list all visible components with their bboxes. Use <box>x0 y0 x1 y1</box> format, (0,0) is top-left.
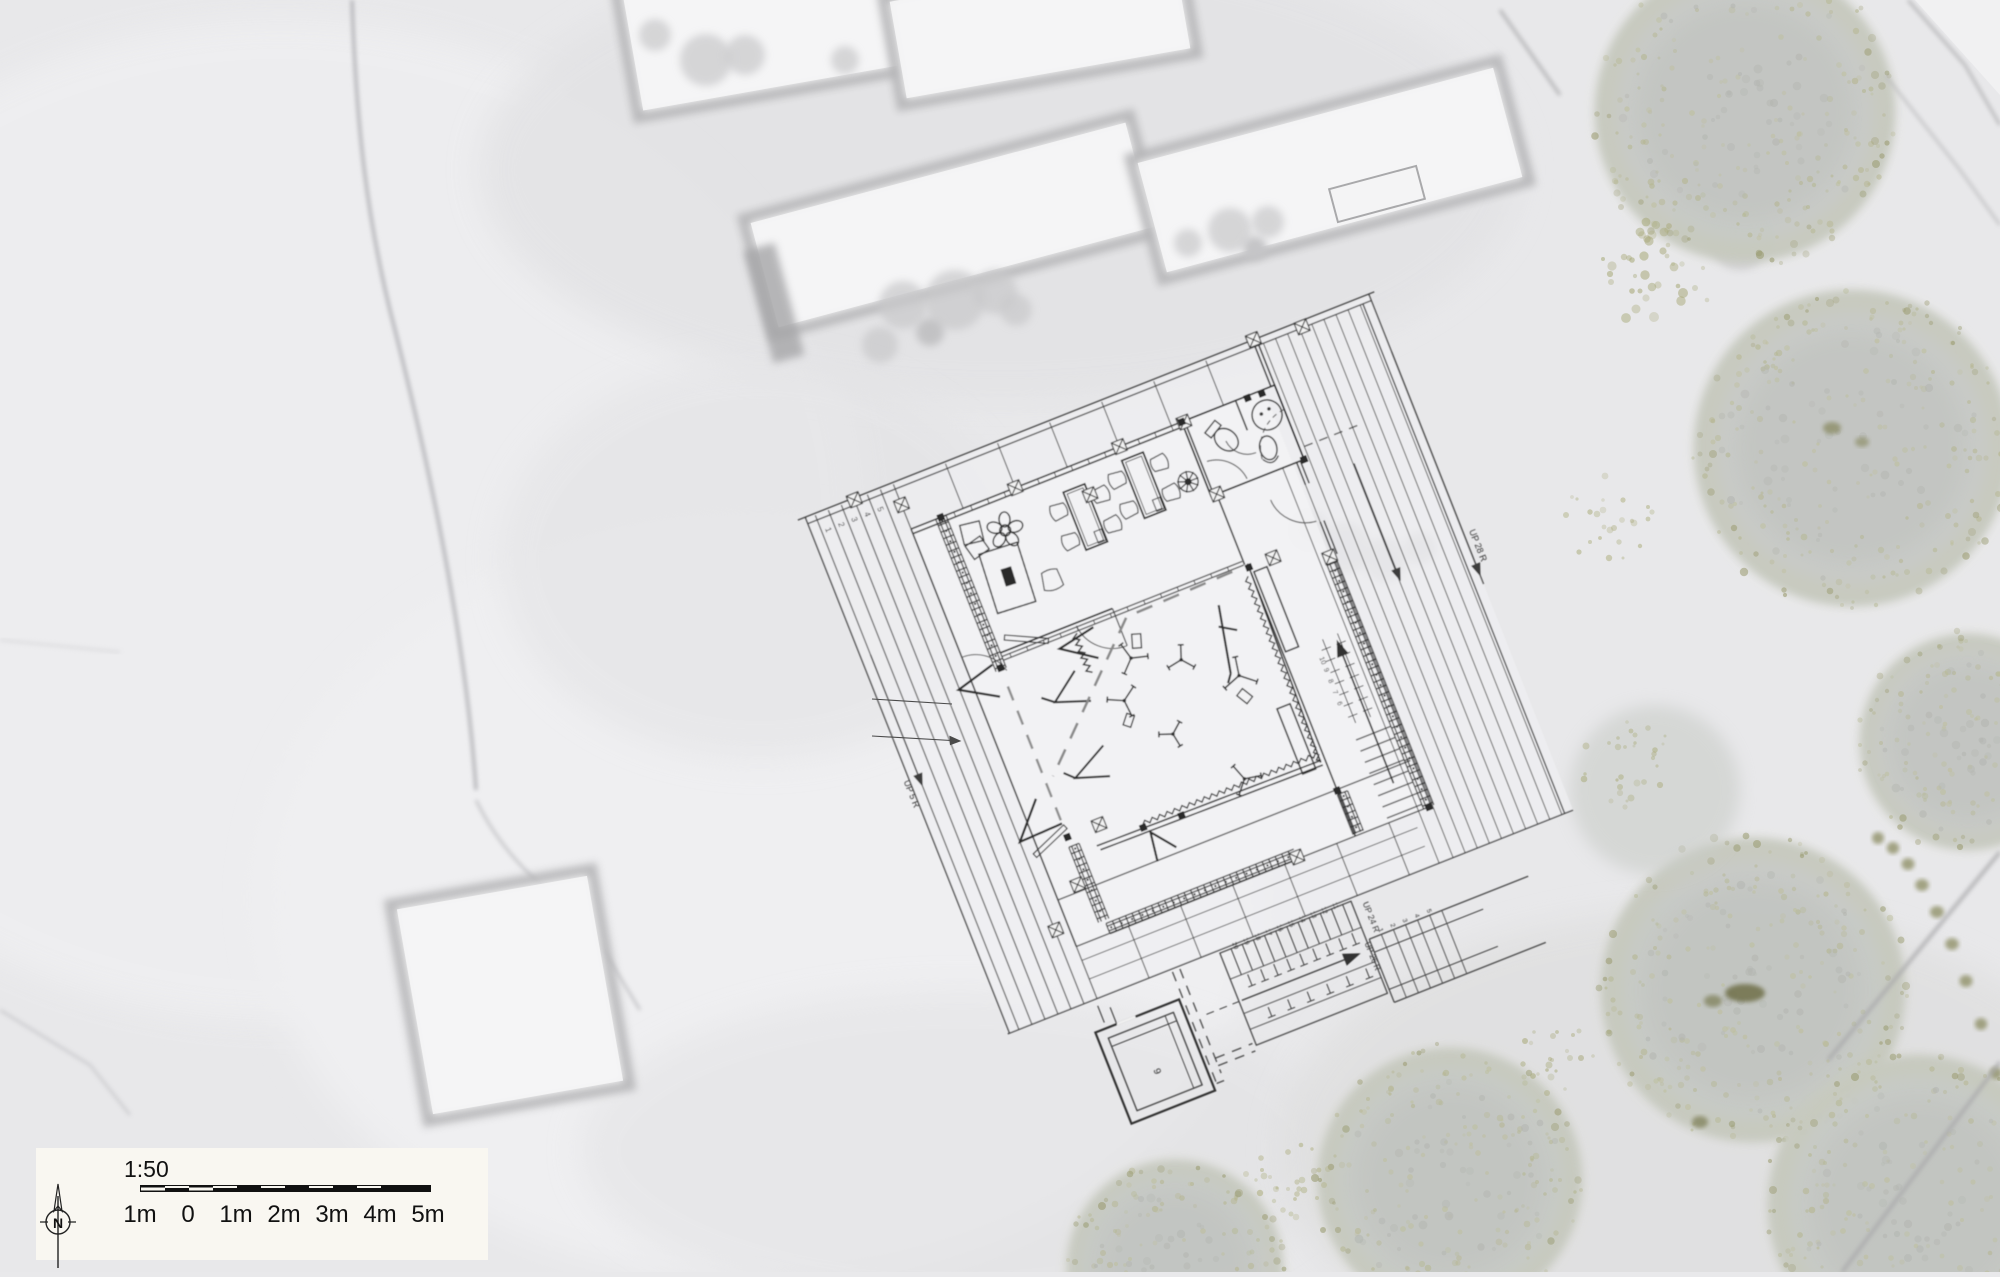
svg-text:N: N <box>53 1215 63 1231</box>
svg-text:5m: 5m <box>411 1201 444 1228</box>
svg-text:1m: 1m <box>123 1201 156 1228</box>
svg-text:1m: 1m <box>219 1201 252 1228</box>
svg-text:2m: 2m <box>267 1201 300 1228</box>
svg-text:3m: 3m <box>315 1201 348 1228</box>
svg-text:0: 0 <box>181 1201 194 1228</box>
svg-text:4m: 4m <box>363 1201 396 1228</box>
svg-text:1:50: 1:50 <box>124 1156 169 1182</box>
